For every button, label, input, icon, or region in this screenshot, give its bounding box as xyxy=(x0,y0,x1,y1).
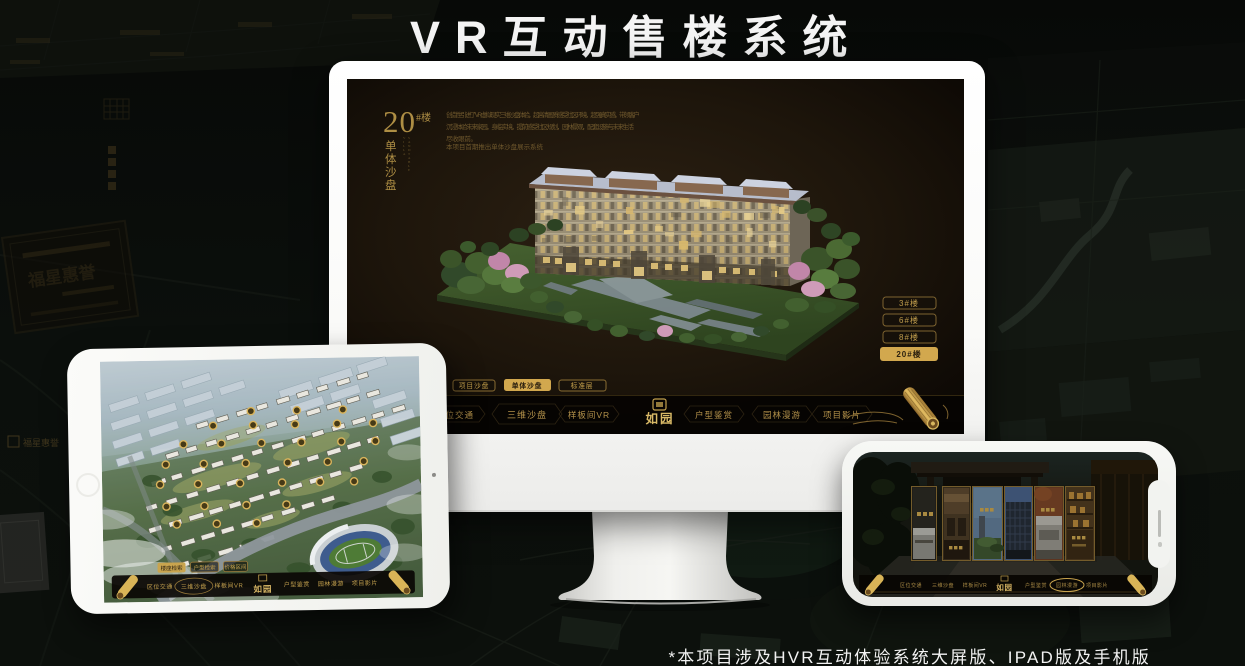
svg-text:单体沙盘: 单体沙盘 xyxy=(512,381,542,390)
svg-text:样板间VR: 样板间VR xyxy=(568,410,610,420)
svg-text:如园: 如园 xyxy=(996,582,1013,592)
svg-text:福星惠誉: 福星惠誉 xyxy=(23,437,59,448)
svg-text:8#楼: 8#楼 xyxy=(899,332,919,342)
svg-text:如园: 如园 xyxy=(645,411,674,426)
svg-text:三维沙盘: 三维沙盘 xyxy=(932,582,954,589)
svg-text:如园: 如园 xyxy=(253,584,272,594)
svg-text:项目沙盘: 项目沙盘 xyxy=(459,381,489,390)
svg-text:盘: 盘 xyxy=(385,178,397,192)
svg-text:项目影片: 项目影片 xyxy=(1086,582,1108,589)
svg-text:户型鉴赏: 户型鉴赏 xyxy=(1025,582,1047,589)
svg-text:样板间VR: 样板间VR xyxy=(963,582,987,589)
svg-text:区位交通: 区位交通 xyxy=(900,582,922,589)
svg-text:3#楼: 3#楼 xyxy=(899,298,919,308)
svg-text:标准层: 标准层 xyxy=(571,381,594,390)
svg-text:本项目首期推出单体沙盘展示系统: 本项目首期推出单体沙盘展示系统 xyxy=(446,142,544,151)
svg-text:20#楼: 20#楼 xyxy=(896,349,921,359)
svg-text:20: 20 xyxy=(383,104,416,139)
svg-text:创造性引进了VR虚拟现实三维沙盘体验，超高清画质感受社区环境: 创造性引进了VR虚拟现实三维沙盘体验，超高清画质感受社区环境，超强真实感，带领客… xyxy=(446,110,640,119)
svg-text:沉浸体验未来家园，身临实境，提前感受社区规划，园林景观，配套: 沉浸体验未来家园，身临实境，提前感受社区规划，园林景观，配套设施与未来生活 xyxy=(446,122,635,131)
svg-text:尽收眼前。: 尽收眼前。 xyxy=(446,134,477,143)
svg-text:6#楼: 6#楼 xyxy=(899,315,919,325)
svg-text:园林漫游: 园林漫游 xyxy=(763,410,801,420)
svg-text:园林漫游: 园林漫游 xyxy=(1056,582,1078,589)
svg-text:户型鉴赏: 户型鉴赏 xyxy=(695,410,733,420)
svg-text:#楼: #楼 xyxy=(416,111,431,124)
svg-text:E: E xyxy=(408,168,410,172)
svg-text:体: 体 xyxy=(385,152,397,166)
svg-text:沙: 沙 xyxy=(385,166,397,179)
svg-text:项目影片: 项目影片 xyxy=(823,410,861,420)
svg-text:单: 单 xyxy=(385,140,397,153)
svg-text:三维沙盘: 三维沙盘 xyxy=(507,409,547,420)
